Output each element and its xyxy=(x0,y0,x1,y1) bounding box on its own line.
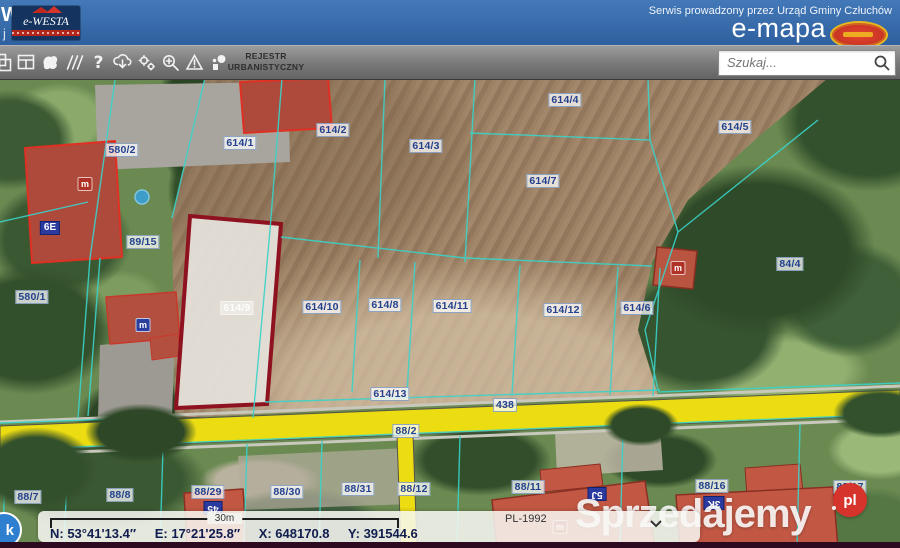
windows-icon[interactable] xyxy=(0,49,13,75)
parcel-label-580/2: 580/2 xyxy=(105,143,138,157)
parcel-label-614/8: 614/8 xyxy=(368,298,401,312)
parcel-label-88/8: 88/8 xyxy=(106,488,133,502)
top-header-bar: W j e-WESTA Serwis prowadzony przez Urzą… xyxy=(0,0,900,46)
parcel-label-614/6: 614/6 xyxy=(620,301,653,315)
parcel-label-614/7: 614/7 xyxy=(526,174,559,188)
house-number-3K: 3K xyxy=(704,496,725,510)
search-input[interactable] xyxy=(719,51,877,73)
app-window: 580/2614/1614/2614/3614/4614/5614/789/15… xyxy=(0,0,900,548)
address-point-icon: m xyxy=(136,318,151,332)
search-box xyxy=(718,50,896,76)
settings-gears-icon[interactable] xyxy=(136,49,157,75)
coord-y: Y: 391544.6 xyxy=(348,526,418,541)
polygon-select-icon[interactable] xyxy=(40,49,61,75)
chevron-down-icon[interactable] xyxy=(650,515,662,533)
parcel-label-88/30: 88/30 xyxy=(270,485,303,499)
layout-panels-icon[interactable] xyxy=(16,49,37,75)
parcel-label-88/16: 88/16 xyxy=(695,479,728,493)
parcel-label-89/15: 89/15 xyxy=(126,235,159,249)
parcel-label-614/5: 614/5 xyxy=(718,120,751,134)
crs-selector[interactable]: PL-1992 xyxy=(505,513,547,525)
parcel-label-88/11: 88/11 xyxy=(512,480,545,494)
ewesta-roof-icon xyxy=(12,6,80,14)
ewesta-logo[interactable]: e-WESTA xyxy=(12,6,80,40)
search-icon[interactable] xyxy=(873,54,891,77)
parcel-label-614/3: 614/3 xyxy=(409,139,442,153)
parcel-label-614/13: 614/13 xyxy=(370,387,409,401)
parcel-label-614/1: 614/1 xyxy=(223,136,256,150)
house-number-5J: 5J xyxy=(587,487,606,501)
partial-edge-text: j xyxy=(3,26,6,41)
warning-triangle-icon[interactable] xyxy=(184,49,205,75)
coord-x: X: 648170.8 xyxy=(259,526,330,541)
parcel-label-88/31: 88/31 xyxy=(341,482,374,496)
zoom-search-icon[interactable] xyxy=(160,49,181,75)
coordinates-readout: N: 53°41'13.4″ E: 17°21'25.8″ X: 648170.… xyxy=(50,526,433,541)
parcel-labels-layer: 580/2614/1614/2614/3614/4614/5614/789/15… xyxy=(0,0,900,548)
help-icon[interactable]: ? xyxy=(88,49,109,75)
parcel-label-614/11: 614/11 xyxy=(433,299,472,313)
coord-e: E: 17°21'25.8″ xyxy=(155,526,240,541)
emapa-logo-text: e-mapa xyxy=(731,13,826,44)
svg-text:?: ? xyxy=(94,53,104,73)
scale-bar-label: 30m xyxy=(207,513,242,524)
parcel-label-88/7: 88/7 xyxy=(14,490,41,504)
ewesta-logo-band xyxy=(12,30,80,36)
rejestr-urbanistyczny-button[interactable]: REJESTR URBANISTYCZNY xyxy=(222,51,310,74)
map-statusbar: 30m PL-1992 N: 53°41'13.4″ E: 17°21'25.8… xyxy=(38,511,700,542)
parcel-label-88/12: 88/12 xyxy=(397,482,430,496)
parcel-label-88/17: 88/17 xyxy=(833,480,866,494)
cloud-download-icon[interactable] xyxy=(112,49,133,75)
coord-n: N: 53°41'13.4″ xyxy=(50,526,136,541)
address-point-icon: m xyxy=(78,177,93,191)
parcel-label-614/12: 614/12 xyxy=(543,303,582,317)
map-toolbar: ? REJESTR URBANISTYCZNY xyxy=(0,45,900,80)
parcel-label-614/9: 614/9 xyxy=(220,301,253,315)
parcel-label-614/10: 614/10 xyxy=(302,300,341,314)
house-number-6E: 6E xyxy=(40,221,60,235)
ewesta-logo-text: e-WESTA xyxy=(12,14,80,28)
parcel-label-84/4: 84/4 xyxy=(776,257,803,271)
measure-icon[interactable] xyxy=(64,49,85,75)
parcel-label-88/29: 88/29 xyxy=(191,485,224,499)
parcel-label-88/2: 88/2 xyxy=(392,424,419,438)
parcel-label-580/1: 580/1 xyxy=(15,290,48,304)
toolbar-icons-row: ? xyxy=(0,49,229,75)
address-point-icon: m xyxy=(671,261,686,275)
parcel-label-614/4: 614/4 xyxy=(548,93,581,107)
parcel-label-438: 438 xyxy=(493,398,517,412)
parcel-label-614/2: 614/2 xyxy=(316,123,349,137)
bottom-border-strip xyxy=(0,542,900,548)
